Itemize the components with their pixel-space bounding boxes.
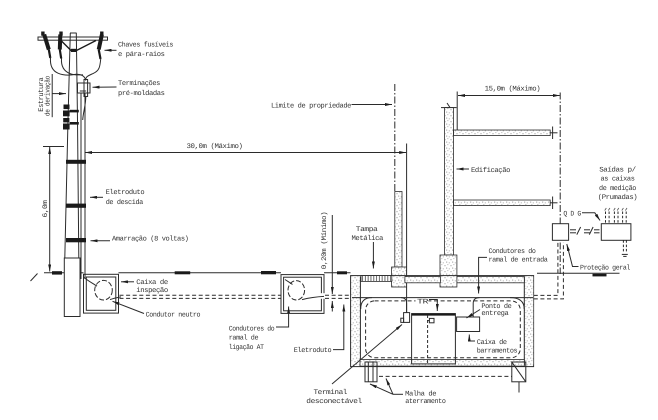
svg-text:barramentos: barramentos <box>477 347 518 356</box>
svg-text:Condutor neutro: Condutor neutro <box>146 311 201 320</box>
svg-text:Terminal: Terminal <box>314 388 348 397</box>
svg-text:ramal de entrada: ramal de entrada <box>489 255 548 264</box>
svg-text:TR: TR <box>417 299 430 307</box>
svg-text:inspeção: inspeção <box>136 286 168 295</box>
svg-text:Terminações: Terminações <box>118 79 160 88</box>
svg-text:de derivação: de derivação <box>43 76 52 116</box>
svg-text:ramal de: ramal de <box>229 334 259 343</box>
svg-text:Condutores do: Condutores do <box>489 247 536 256</box>
svg-text:de medição: de medição <box>599 184 636 193</box>
svg-text:desconectável: desconectável <box>306 397 362 406</box>
svg-text:e pára-raios: e pára-raios <box>118 50 165 59</box>
svg-text:Condutores do: Condutores do <box>229 324 275 333</box>
svg-text:aterramento: aterramento <box>405 398 445 406</box>
svg-text:pré-moldadas: pré-moldadas <box>118 89 165 98</box>
svg-text:Proteção geral: Proteção geral <box>580 264 630 273</box>
svg-text:0,20m (Mínimo): 0,20m (Mínimo) <box>320 212 329 270</box>
svg-text:Saídas p/: Saídas p/ <box>599 166 636 175</box>
svg-text:Eletroduto: Eletroduto <box>294 346 332 355</box>
svg-text:(Prumadas): (Prumadas) <box>598 193 638 202</box>
svg-text:Edificação: Edificação <box>471 166 510 175</box>
svg-text:as caixas: as caixas <box>601 175 635 184</box>
svg-text:15,0m (Máximo): 15,0m (Máximo) <box>485 85 541 94</box>
svg-text:entrega: entrega <box>481 310 508 318</box>
svg-text:Metálica: Metálica <box>352 234 384 243</box>
svg-text:Q D G: Q D G <box>563 210 581 218</box>
svg-text:Eletroduto: Eletroduto <box>106 188 145 197</box>
svg-text:Caixa de: Caixa de <box>136 278 168 287</box>
svg-text:Chaves fusíveis: Chaves fusíveis <box>118 40 173 49</box>
svg-text:6,0m: 6,0m <box>42 200 50 217</box>
svg-text:ligação AT: ligação AT <box>229 343 264 352</box>
svg-text:Caixa de: Caixa de <box>477 338 507 347</box>
svg-text:Limite de propriedade: Limite de propriedade <box>271 101 351 110</box>
svg-text:Tampa: Tampa <box>356 226 378 234</box>
svg-text:30,0m (Máximo): 30,0m (Máximo) <box>187 142 243 151</box>
svg-text:de descida: de descida <box>106 198 143 207</box>
svg-text:Amarração (8 voltas): Amarração (8 voltas) <box>112 235 189 244</box>
